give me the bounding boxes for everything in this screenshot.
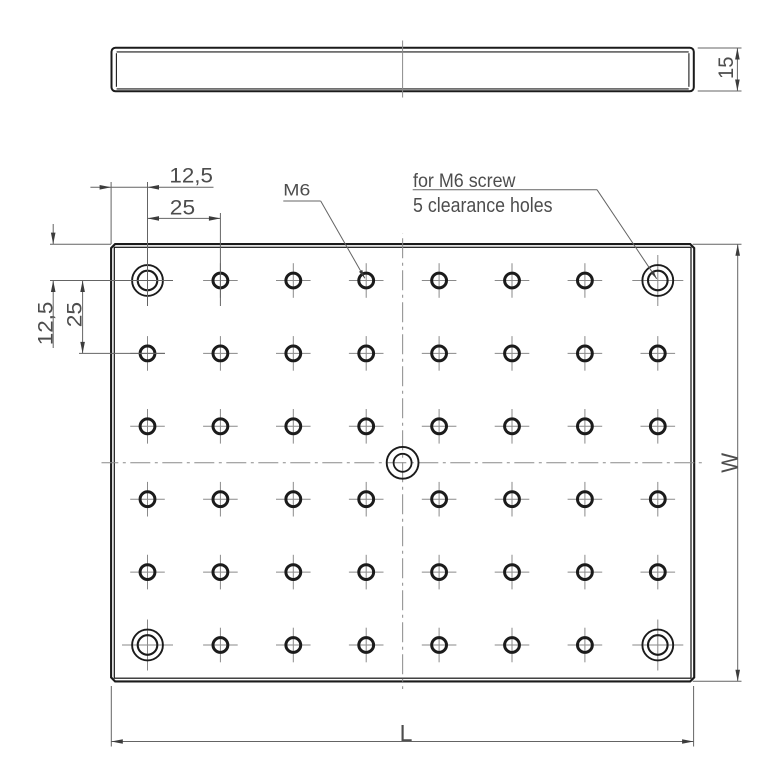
svg-text:15: 15 <box>715 57 738 80</box>
svg-text:for M6 screw: for M6 screw <box>413 170 516 192</box>
svg-text:M6: M6 <box>283 182 310 200</box>
svg-text:L: L <box>400 720 413 746</box>
svg-text:25: 25 <box>170 197 195 220</box>
svg-text:25: 25 <box>64 302 87 327</box>
svg-text:5 clearance holes: 5 clearance holes <box>413 195 553 217</box>
svg-text:W: W <box>717 453 743 473</box>
svg-text:12,5: 12,5 <box>34 302 57 346</box>
svg-text:12,5: 12,5 <box>169 165 213 188</box>
